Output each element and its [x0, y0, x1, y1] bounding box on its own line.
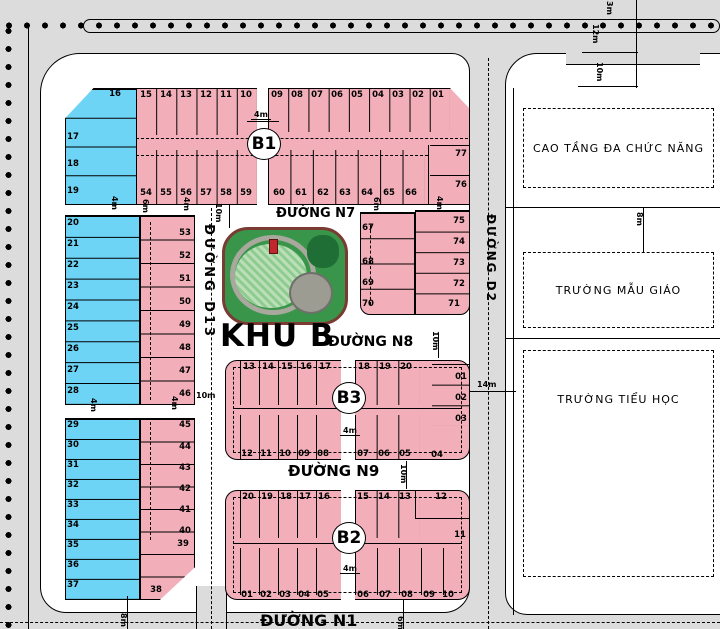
- lot-number-92-09: 09: [296, 450, 312, 459]
- lot-number-40-26: 26: [65, 345, 81, 354]
- lot-boundary-line: [415, 518, 470, 519]
- lot-number-64-41: 41: [177, 506, 193, 515]
- lot-number-16-55: 55: [158, 189, 174, 198]
- lot-number-83-19: 19: [377, 363, 393, 372]
- lot-number-34-20: 20: [65, 219, 81, 228]
- left-street-edge-line: [28, 26, 29, 629]
- park-area: [222, 227, 348, 325]
- lot-number-8-07: 07: [309, 91, 325, 100]
- dimension-line: [578, 86, 638, 87]
- lot-number-51-29: 29: [65, 421, 81, 430]
- lot-number-116-10: 10: [440, 591, 456, 600]
- dimension-line: [470, 391, 516, 392]
- lot-number-111-05: 05: [315, 591, 331, 600]
- lot-number-77-13: 13: [241, 363, 257, 372]
- dimension-label: 12m: [591, 24, 600, 43]
- dimension-line: [247, 121, 279, 122]
- lot-number-69-68: 68: [360, 258, 376, 267]
- lot-number-76-71: 71: [446, 300, 462, 309]
- dimension-label: 6m: [372, 197, 381, 211]
- street-label-n7: ĐƯỜNG N7: [276, 206, 355, 221]
- lot-number-105-12: 12: [433, 493, 449, 502]
- lot-boundary-line: [428, 145, 429, 205]
- lot-number-52-30: 30: [65, 441, 81, 450]
- lot-boundary-line: [415, 490, 416, 518]
- lot-number-44-52: 52: [177, 252, 193, 261]
- facility-mau-giao: TRƯỜNG MẪU GIÁO: [523, 252, 714, 328]
- lot-number-108-02: 02: [258, 591, 274, 600]
- road-d2-centerline: [488, 58, 489, 629]
- lot-number-81-17: 17: [317, 363, 333, 372]
- lot-number-57-35: 35: [65, 541, 81, 550]
- lot-number-103-14: 14: [376, 493, 392, 502]
- lot-number-70-69: 69: [360, 279, 376, 288]
- facility-cao-tang-label: CAO TẦNG ĐA CHỨC NĂNG: [533, 142, 704, 155]
- dimension-label: 4m: [435, 196, 444, 210]
- lot-number-85-01: 01: [453, 373, 469, 382]
- lot-number-6-09: 09: [269, 91, 285, 100]
- dimension-line: [582, 52, 638, 53]
- lot-number-62-43: 43: [177, 464, 193, 473]
- dimension-label: 4m: [340, 564, 360, 574]
- facility-cao-tang: CAO TẦNG ĐA CHỨC NĂNG: [523, 108, 714, 188]
- lot-number-74-73: 73: [451, 259, 467, 268]
- block-circle-b3: B3: [332, 382, 366, 414]
- lot-number-54-32: 32: [65, 481, 81, 490]
- lot-number-93-08: 08: [315, 450, 331, 459]
- dimension-label: 4m: [251, 110, 271, 120]
- facility-mau-giao-label: TRƯỜNG MẪU GIÁO: [556, 284, 681, 297]
- lot-number-37-23: 23: [65, 282, 81, 291]
- lot-number-47-49: 49: [177, 321, 193, 330]
- lot-number-41-27: 27: [65, 366, 81, 375]
- lot-number-115-09: 09: [421, 591, 437, 600]
- school-division-line: [505, 338, 720, 339]
- lot-number-99-18: 18: [278, 493, 294, 502]
- dimension-label: 4m: [170, 396, 179, 410]
- lot-number-84-20: 20: [398, 363, 414, 372]
- lot-number-98-19: 19: [259, 493, 275, 502]
- lot-number-36-22: 22: [65, 261, 81, 270]
- street-label-n8: ĐƯỜNG N8: [328, 334, 413, 350]
- dimension-label: 10m: [214, 203, 223, 222]
- lot-number-71-70: 70: [360, 300, 376, 309]
- lot-number-97-20: 20: [240, 493, 256, 502]
- lot-number-73-74: 74: [451, 238, 467, 247]
- dimension-line: [636, 0, 637, 88]
- lot-number-87-03: 03: [453, 415, 469, 424]
- lot-number-5-10: 10: [238, 91, 254, 100]
- lot-number-1-14: 14: [158, 91, 174, 100]
- lot-number-0-15: 15: [138, 91, 154, 100]
- lot-number-79-15: 15: [279, 363, 295, 372]
- lot-number-28-77: 77: [453, 150, 469, 159]
- lot-number-3-12: 12: [198, 91, 214, 100]
- lot-number-27-66: 66: [403, 189, 419, 198]
- street-label-n1: ĐƯỜNG N1: [260, 611, 357, 629]
- lot-number-59-37: 37: [65, 581, 81, 590]
- top-edge-notch: [566, 53, 700, 65]
- block-circle-b2: B2: [332, 522, 366, 554]
- school-division-line: [505, 207, 720, 208]
- lot-number-11-04: 04: [370, 91, 386, 100]
- lot-number-114-08: 08: [399, 591, 415, 600]
- boundary-capsule: [83, 19, 720, 33]
- lot-number-21-60: 60: [271, 189, 287, 198]
- zone-title: KHU B: [220, 318, 335, 354]
- park-plaza: [289, 272, 333, 314]
- lot-number-113-07: 07: [377, 591, 393, 600]
- dimension-label: 4m: [340, 426, 360, 436]
- lot-number-90-11: 11: [258, 450, 274, 459]
- lot-number-39-25: 25: [65, 324, 81, 333]
- lot-number-10-05: 05: [349, 91, 365, 100]
- lot-number-104-13: 13: [397, 493, 413, 502]
- road-n1-centerline: [0, 622, 720, 623]
- lot-number-53-31: 31: [65, 461, 81, 470]
- lot-number-68-67: 67: [360, 224, 376, 233]
- lot-number-94-07: 07: [355, 450, 371, 459]
- lot-number-100-17: 17: [297, 493, 313, 502]
- dimension-label: 6m: [396, 616, 405, 629]
- lot-number-89-12: 12: [239, 450, 255, 459]
- dimension-label: 4m: [89, 398, 98, 412]
- lot-number-33-19: 19: [65, 187, 81, 196]
- lot-number-42-28: 28: [65, 387, 81, 396]
- lot-number-7-08: 08: [289, 91, 305, 100]
- lot-number-14-01: 01: [430, 91, 446, 100]
- lot-number-61-44: 44: [177, 443, 193, 452]
- lot-number-13-02: 02: [410, 91, 426, 100]
- street-label-d13: ĐƯỜNG D13: [201, 224, 216, 339]
- lot-number-107-01: 01: [239, 591, 255, 600]
- lot-number-22-61: 61: [293, 189, 309, 198]
- dimension-label: 3m: [605, 1, 614, 15]
- lot-number-50-46: 46: [177, 390, 193, 399]
- lot-number-31-17: 17: [65, 133, 81, 142]
- park-kiosk: [269, 239, 278, 254]
- dimension-label: 14m: [477, 380, 496, 389]
- dimension-label: 10m: [196, 391, 215, 400]
- setback-line: [136, 155, 428, 156]
- lot-number-82-18: 18: [356, 363, 372, 372]
- lot-number-55-33: 33: [65, 501, 81, 510]
- lot-number-80-16: 16: [298, 363, 314, 372]
- street-label-n9: ĐƯỜNG N9: [288, 462, 379, 480]
- dimension-label: 8m: [635, 212, 644, 226]
- lot-number-78-14: 14: [260, 363, 276, 372]
- lot-number-48-48: 48: [177, 344, 193, 353]
- lot-number-75-72: 72: [451, 280, 467, 289]
- lot-number-45-51: 51: [177, 275, 193, 284]
- dimension-label: 10m: [431, 331, 440, 350]
- lot-number-49-47: 47: [177, 367, 193, 376]
- dimension-label: 6m: [141, 199, 150, 213]
- lot-number-4-11: 11: [218, 91, 234, 100]
- lot-number-30-16: 16: [107, 90, 123, 99]
- lot-number-2-13: 13: [178, 91, 194, 100]
- lot-number-66-39: 39: [175, 540, 191, 549]
- setback-line: [136, 138, 468, 139]
- lot-number-9-06: 06: [329, 91, 345, 100]
- lot-number-96-05: 05: [397, 450, 413, 459]
- lot-number-20-59: 59: [238, 189, 254, 198]
- dimension-label: 10m: [399, 464, 408, 483]
- lot-number-43-53: 53: [177, 229, 193, 238]
- block-circle-b1: B1: [247, 128, 281, 160]
- lot-number-109-03: 03: [277, 591, 293, 600]
- plan-canvas: CAO TẦNG ĐA CHỨC NĂNG TRƯỜNG MẪU GIÁO TR…: [0, 0, 720, 629]
- facility-tieu-hoc: TRƯỜNG TIỂU HỌC: [523, 350, 714, 577]
- lot-number-112-06: 06: [355, 591, 371, 600]
- setback-line: [150, 422, 151, 540]
- lot-number-88-04: 04: [429, 451, 445, 460]
- park-trees: [307, 235, 339, 268]
- lot-number-32-18: 18: [65, 160, 81, 169]
- lot-number-38-24: 24: [65, 303, 81, 312]
- dimension-line: [229, 204, 230, 228]
- lot-number-102-15: 15: [355, 493, 371, 502]
- lot-number-19-58: 58: [218, 189, 234, 198]
- lot-number-86-02: 02: [453, 394, 469, 403]
- boundary-dots-left: [5, 22, 12, 629]
- lot-number-24-63: 63: [337, 189, 353, 198]
- lot-number-56-34: 34: [65, 521, 81, 530]
- lot-number-23-62: 62: [315, 189, 331, 198]
- lot-number-110-04: 04: [296, 591, 312, 600]
- lot-number-60-45: 45: [177, 421, 193, 430]
- dimension-label: 10m: [595, 62, 604, 81]
- dimension-label: 4m: [182, 197, 191, 211]
- street-label-d2: ĐƯỜNG D2: [484, 214, 498, 303]
- lot-number-26-65: 65: [381, 189, 397, 198]
- lot-number-15-54: 54: [138, 189, 154, 198]
- lot-number-58-36: 36: [65, 561, 81, 570]
- lot-number-95-06: 06: [376, 450, 392, 459]
- lot-number-67-38: 38: [148, 586, 164, 595]
- lot-number-29-76: 76: [453, 181, 469, 190]
- lot-group-leftmid-pink: [140, 215, 195, 405]
- school-lot-line: [513, 88, 514, 615]
- dimension-label: 4m: [110, 196, 119, 210]
- lot-number-18-57: 57: [198, 189, 214, 198]
- lot-number-101-16: 16: [316, 493, 332, 502]
- lot-number-91-10: 10: [277, 450, 293, 459]
- setback-line: [150, 222, 151, 400]
- lot-number-46-50: 50: [177, 298, 193, 307]
- lot-number-106-11: 11: [452, 531, 468, 540]
- facility-tieu-hoc-label: TRƯỜNG TIỂU HỌC: [557, 393, 679, 406]
- dimension-label: 8m: [119, 613, 128, 627]
- lot-number-63-42: 42: [177, 485, 193, 494]
- lot-number-65-40: 40: [177, 527, 193, 536]
- lot-number-35-21: 21: [65, 240, 81, 249]
- lot-number-72-75: 75: [451, 217, 467, 226]
- lot-number-12-03: 03: [390, 91, 406, 100]
